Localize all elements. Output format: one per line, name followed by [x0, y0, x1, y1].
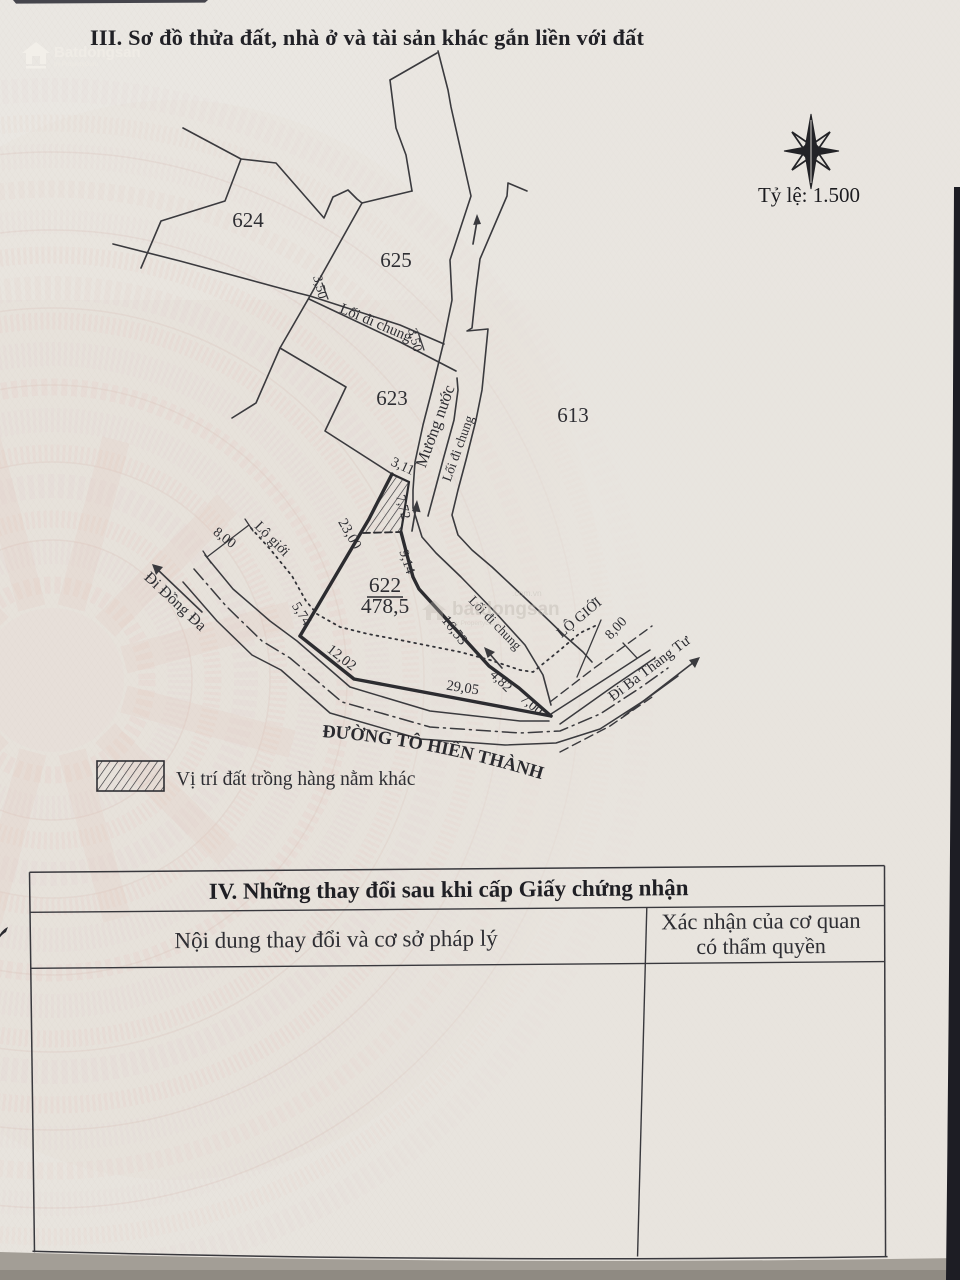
svg-text:Nội dung thay đổi và cơ sở phá: Nội dung thay đổi và cơ sở pháp lý	[174, 926, 498, 954]
svg-text:Xác nhận của cơ quan: Xác nhận của cơ quan	[661, 908, 861, 935]
svg-text:by PropertyGuru: by PropertyGuru	[54, 62, 98, 68]
svg-text:478,5: 478,5	[361, 594, 409, 618]
svg-text:batdongsan: batdongsan	[452, 599, 560, 620]
svg-text:Tỷ lệ: 1.500: Tỷ lệ: 1.500	[758, 183, 860, 207]
svg-text:by PropertyGuru: by PropertyGuru	[452, 620, 500, 627]
svg-text:có thẩm quyền: có thẩm quyền	[696, 933, 826, 959]
svg-text:613: 613	[557, 403, 589, 427]
svg-text:Vị trí đất trồng hàng nằm khác: Vị trí đất trồng hàng nằm khác	[176, 769, 416, 790]
svg-text:IV. Những thay đổi sau khi cấp: IV. Những thay đổi sau khi cấp Giấy chứn…	[209, 875, 689, 904]
svg-text:623: 623	[376, 386, 408, 410]
svg-text:625: 625	[380, 248, 412, 272]
svg-text:III. Sơ đồ thửa đất, nhà ở và: III. Sơ đồ thửa đất, nhà ở và tài sản kh…	[90, 25, 644, 50]
svg-text:624: 624	[232, 208, 264, 232]
svg-text:.com.vn: .com.vn	[512, 588, 542, 598]
